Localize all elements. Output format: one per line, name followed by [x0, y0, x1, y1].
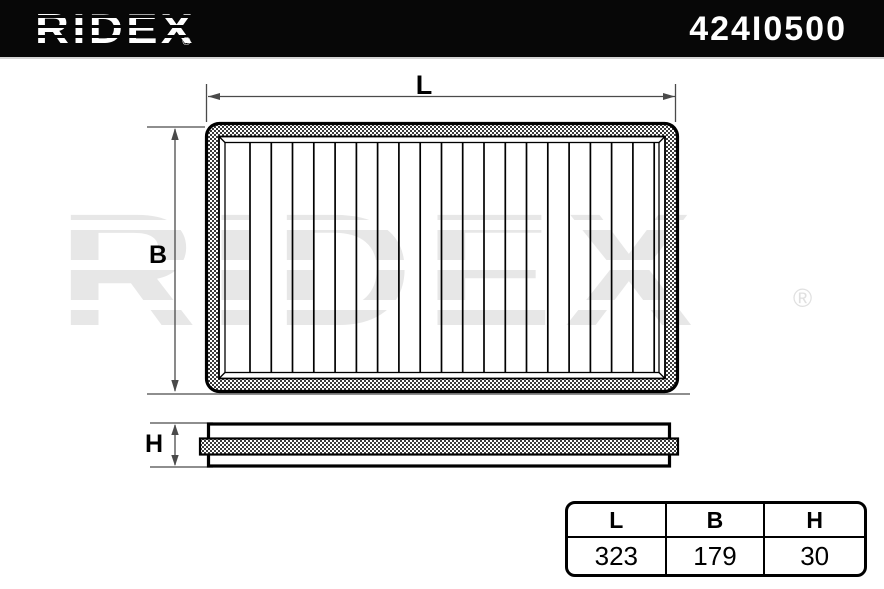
- table-header-h: H: [765, 504, 864, 536]
- dimensions-table-header-row: L B H: [568, 504, 864, 538]
- width-dimension-label: B: [144, 241, 172, 270]
- l-arrow-right: [663, 93, 675, 100]
- filter-top-view: [207, 124, 678, 392]
- length-dimension-label: L: [404, 70, 444, 101]
- dimensions-table: L B H 323 179 30: [565, 501, 867, 577]
- h-arrow-bottom: [171, 455, 178, 466]
- dimensions-table-value-row: 323 179 30: [568, 538, 864, 574]
- table-value-l: 323: [568, 538, 667, 574]
- table-header-l: L: [568, 504, 667, 536]
- b-arrow-bottom: [171, 380, 178, 392]
- table-header-b: B: [667, 504, 766, 536]
- h-arrow-top: [171, 424, 178, 435]
- gasket-strip: [200, 439, 678, 455]
- b-arrow-top: [171, 128, 178, 140]
- table-value-h: 30: [765, 538, 864, 574]
- table-value-b: 179: [667, 538, 766, 574]
- l-arrow-left: [208, 93, 220, 100]
- height-dimension-label: H: [140, 430, 168, 459]
- filter-side-view: [200, 424, 678, 466]
